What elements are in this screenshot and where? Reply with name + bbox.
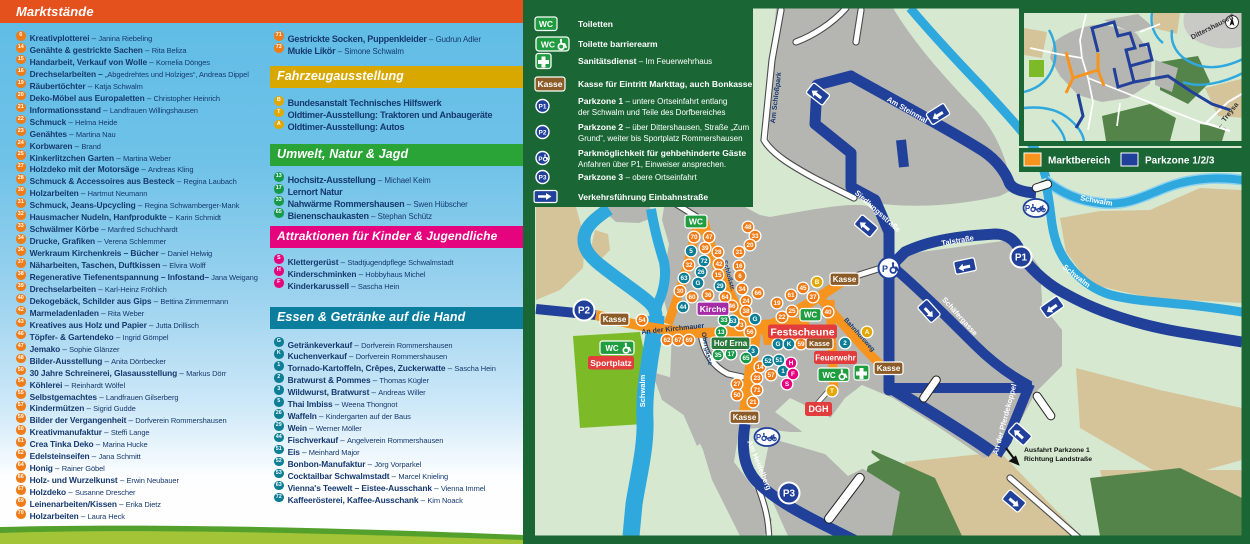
svg-text:WC: WC (822, 371, 836, 380)
svg-text:P: P (756, 433, 762, 442)
svg-text:72: 72 (700, 258, 708, 265)
svg-text:Schwalm: Schwalm (638, 374, 647, 407)
svg-text:52: 52 (764, 358, 772, 365)
svg-text:69: 69 (685, 337, 693, 344)
svg-text:WC: WC (541, 40, 555, 50)
svg-text:33: 33 (720, 317, 728, 324)
svg-text:47: 47 (705, 234, 713, 241)
svg-text:Parkzone 1/2/3: Parkzone 1/2/3 (1145, 156, 1215, 167)
svg-text:71: 71 (753, 387, 761, 394)
svg-text:16: 16 (735, 263, 743, 270)
svg-text:S: S (785, 381, 790, 388)
svg-text:P2: P2 (539, 129, 547, 136)
svg-text:P: P (538, 156, 542, 163)
svg-text:WC: WC (689, 217, 703, 227)
svg-text:35: 35 (714, 352, 722, 359)
svg-text:6: 6 (738, 273, 742, 280)
svg-text:H: H (789, 360, 794, 367)
svg-text:61: 61 (787, 292, 795, 299)
svg-text:Kasse: Kasse (603, 315, 627, 324)
svg-text:21: 21 (749, 399, 757, 406)
svg-text:65: 65 (742, 355, 750, 362)
svg-text:5: 5 (689, 248, 693, 255)
svg-text:T: T (830, 388, 834, 395)
svg-text:29: 29 (716, 283, 724, 290)
svg-text:59: 59 (797, 341, 805, 348)
svg-text:Kasse für Eintritt Markttag, a: Kasse für Eintritt Markttag, auch Bonkas… (578, 79, 753, 89)
svg-text:17: 17 (727, 351, 735, 358)
svg-text:53: 53 (729, 318, 737, 325)
svg-text:der Schwalm und Teile des Dorf: der Schwalm und Teile des Dorfbereiches (578, 108, 725, 117)
svg-text:Marktbereich: Marktbereich (1048, 156, 1110, 167)
svg-text:F: F (791, 371, 795, 378)
svg-text:Festscheune: Festscheune (770, 326, 834, 338)
svg-text:P1: P1 (539, 103, 547, 110)
svg-text:1: 1 (781, 368, 785, 375)
svg-text:P3: P3 (539, 174, 547, 181)
svg-text:13: 13 (717, 329, 725, 336)
svg-text:P: P (1025, 204, 1031, 213)
svg-text:Parkzone 1 – untere Ortseinfah: Parkzone 1 – untere Ortseinfahrt entlang (578, 96, 727, 106)
svg-text:WC: WC (605, 344, 619, 353)
svg-text:K: K (787, 341, 792, 348)
svg-text:G: G (776, 341, 781, 348)
svg-text:28: 28 (714, 249, 722, 256)
svg-text:P1: P1 (1015, 253, 1028, 264)
svg-text:62: 62 (663, 337, 671, 344)
svg-text:Toilette barrierearm: Toilette barrierearm (578, 39, 658, 49)
svg-text:57: 57 (767, 372, 775, 379)
svg-text:Parkzone 3 – obere Ortseinfahr: Parkzone 3 – obere Ortseinfahrt (578, 172, 697, 182)
svg-text:G: G (753, 316, 758, 323)
svg-text:P: P (882, 264, 888, 274)
svg-text:54: 54 (638, 317, 646, 324)
svg-text:66: 66 (754, 290, 762, 297)
svg-text:G: G (696, 280, 701, 287)
svg-text:45: 45 (799, 285, 807, 292)
svg-text:42: 42 (715, 261, 723, 268)
svg-text:23: 23 (753, 375, 761, 382)
svg-text:Parkmöglichkeit für gehbehinde: Parkmöglichkeit für gehbehinderte Gäste (578, 148, 746, 158)
svg-text:Kasse: Kasse (733, 413, 757, 422)
svg-text:Kasse: Kasse (833, 275, 857, 284)
svg-text:Kasse: Kasse (809, 341, 830, 348)
svg-text:38: 38 (742, 308, 750, 315)
svg-text:14: 14 (756, 364, 764, 371)
svg-text:2: 2 (843, 340, 847, 347)
svg-text:Grund“, weiter bis Sportplatz: Grund“, weiter bis Sportplatz Rommershau… (578, 134, 743, 143)
svg-text:Anfahren über P1, Einweiser an: Anfahren über P1, Einweiser ansprechen. (578, 160, 726, 169)
svg-text:22: 22 (778, 314, 786, 321)
svg-text:Toiletten: Toiletten (578, 19, 613, 29)
svg-text:19: 19 (773, 300, 781, 307)
svg-text:Richtung Landstraße: Richtung Landstraße (1024, 456, 1092, 463)
svg-text:24: 24 (742, 298, 750, 305)
svg-text:56: 56 (746, 329, 754, 336)
svg-text:64: 64 (721, 294, 729, 301)
svg-text:20: 20 (746, 242, 754, 249)
svg-text:44: 44 (679, 304, 687, 311)
svg-text:Feuerwehr: Feuerwehr (815, 353, 855, 362)
svg-text:P2: P2 (578, 306, 591, 317)
svg-text:26: 26 (697, 269, 705, 276)
svg-text:37: 37 (809, 294, 817, 301)
svg-text:Verkehrsführung Einbahnstraße: Verkehrsführung Einbahnstraße (578, 192, 708, 202)
svg-text:30: 30 (676, 288, 684, 295)
svg-text:B: B (815, 279, 820, 286)
svg-text:Hof Erna: Hof Erna (714, 339, 748, 348)
svg-text:67: 67 (674, 337, 682, 344)
svg-text:DGH: DGH (809, 404, 829, 414)
svg-text:WC: WC (539, 19, 553, 29)
svg-text:Kirche: Kirche (700, 304, 727, 314)
svg-text:A: A (865, 329, 870, 336)
svg-text:40: 40 (824, 309, 832, 316)
svg-text:Kasse: Kasse (877, 364, 901, 373)
svg-text:31: 31 (735, 249, 743, 256)
svg-text:Ausfahrt Parkzone 1: Ausfahrt Parkzone 1 (1024, 447, 1090, 454)
svg-text:Parkzone 2 – über Dittershause: Parkzone 2 – über Dittershausen, Straße … (578, 122, 749, 132)
svg-text:Sportplatz: Sportplatz (590, 358, 632, 368)
svg-text:25: 25 (788, 308, 796, 315)
svg-text:32: 32 (685, 262, 693, 269)
svg-text:50: 50 (733, 392, 741, 399)
svg-text:63: 63 (680, 275, 688, 282)
svg-text:3: 3 (751, 348, 755, 355)
svg-text:51: 51 (775, 357, 783, 364)
svg-text:70: 70 (690, 234, 698, 241)
svg-text:WC: WC (804, 311, 818, 320)
svg-text:Kasse: Kasse (537, 79, 562, 89)
svg-text:27: 27 (733, 381, 741, 388)
svg-text:60: 60 (688, 294, 696, 301)
svg-text:P3: P3 (783, 489, 796, 500)
svg-text:15: 15 (714, 272, 722, 279)
svg-text:Sanitätsdienst – Im Feuerwehrh: Sanitätsdienst – Im Feuerwehrhaus (578, 56, 712, 66)
svg-text:48: 48 (744, 224, 752, 231)
svg-text:34: 34 (738, 286, 746, 293)
svg-text:39: 39 (701, 245, 709, 252)
svg-text:36: 36 (704, 292, 712, 299)
